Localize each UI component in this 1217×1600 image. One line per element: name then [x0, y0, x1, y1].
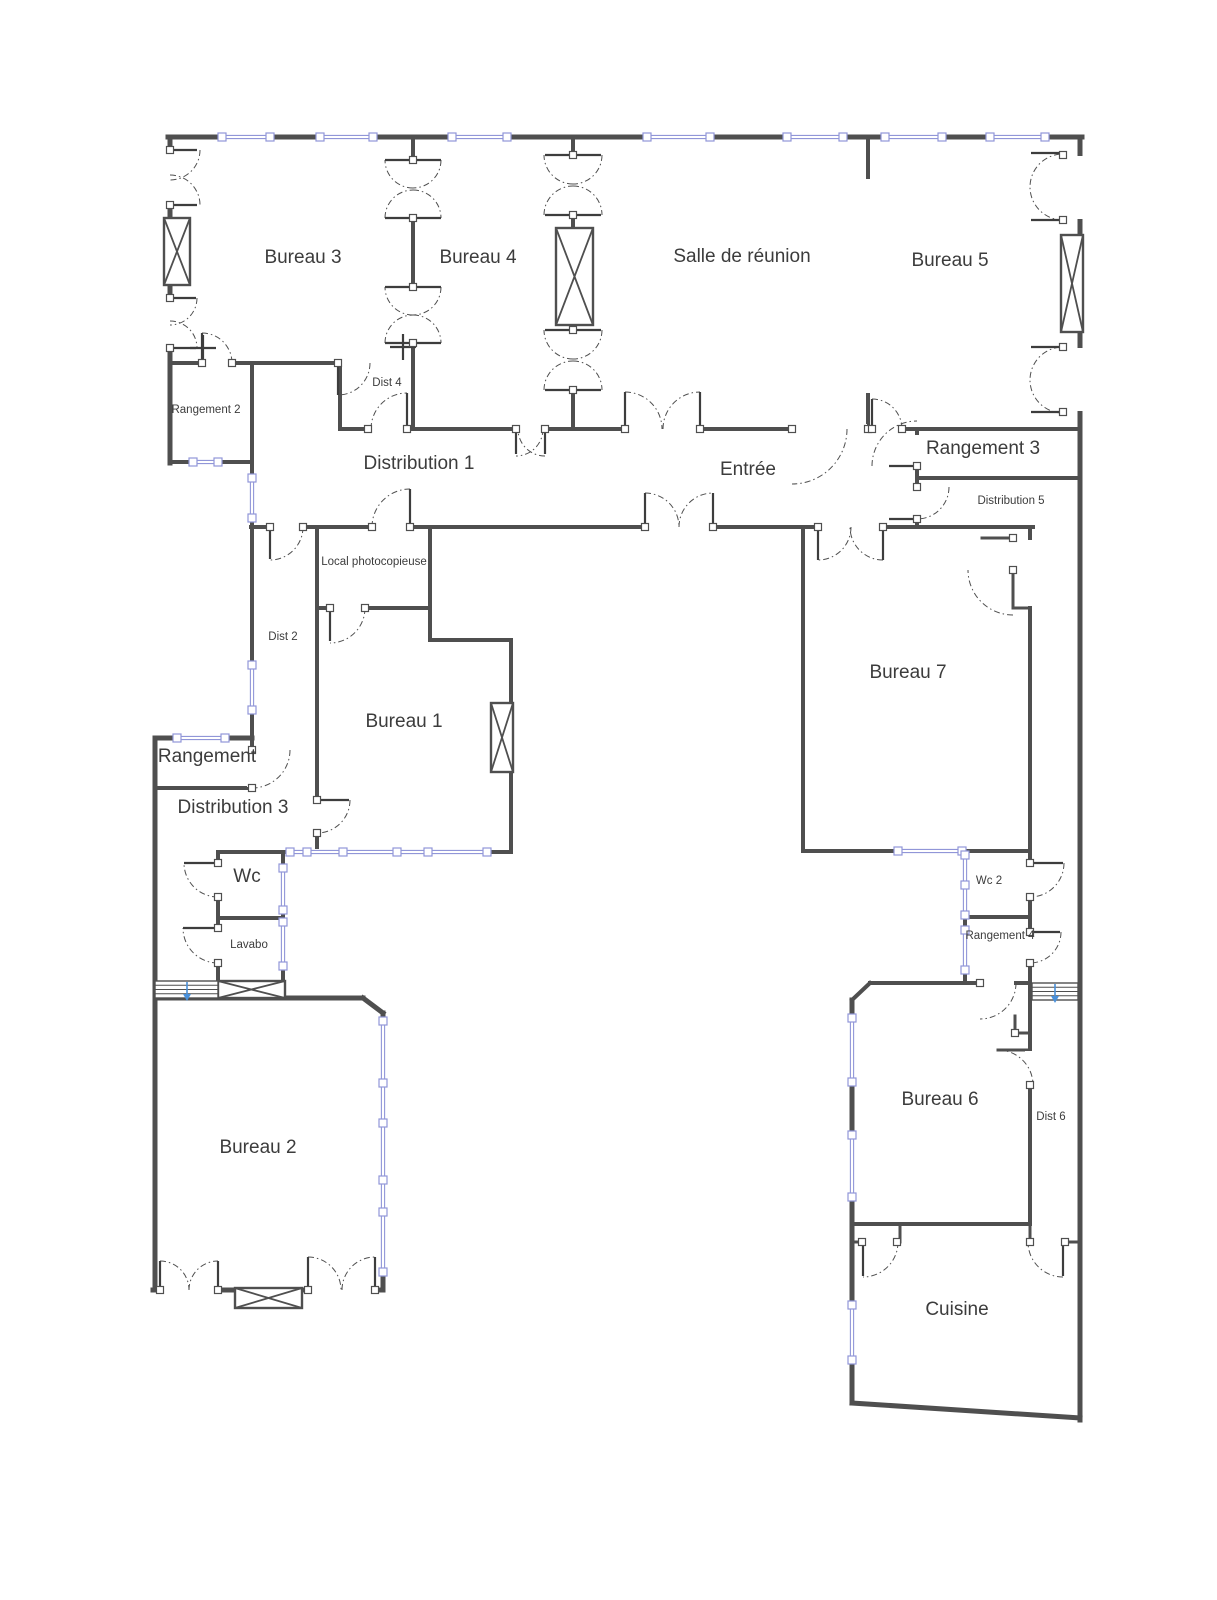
room-label-rangement-2: Rangement 2 — [171, 404, 240, 416]
window-mullion — [961, 966, 969, 974]
door-jamb — [167, 345, 174, 352]
door-jamb — [697, 426, 704, 433]
room-label-salle-de-reunion: Salle de réunion — [673, 246, 810, 267]
door-jamb — [710, 524, 717, 531]
door-jamb — [267, 524, 274, 531]
door-jamb — [815, 524, 822, 531]
window-mullion — [248, 706, 256, 714]
window-mullion — [783, 133, 791, 141]
door-jamb — [314, 797, 321, 804]
door-jamb — [215, 925, 222, 932]
window-mullion — [286, 848, 294, 856]
window-mullion — [316, 133, 324, 141]
window-mullion — [839, 133, 847, 141]
door-jamb — [407, 524, 414, 531]
door-jamb — [215, 894, 222, 901]
door-jamb — [1027, 860, 1034, 867]
door-jamb — [622, 426, 629, 433]
door-jamb — [570, 327, 577, 334]
door-jamb — [513, 426, 520, 433]
room-label-wc-2: Wc 2 — [976, 875, 1002, 887]
door-jamb — [914, 516, 921, 523]
door-jamb — [869, 426, 876, 433]
door-jamb — [215, 1287, 222, 1294]
window-mullion — [1041, 133, 1049, 141]
door-jamb — [1027, 1082, 1034, 1089]
room-label-bureau-5: Bureau 5 — [911, 250, 988, 271]
window-mullion — [483, 848, 491, 856]
wall-opening — [271, 522, 302, 532]
door-jamb — [914, 463, 921, 470]
room-label-rangement-4: Rangement 4 — [965, 930, 1035, 942]
window-mullion — [706, 133, 714, 141]
window-mullion — [848, 1356, 856, 1364]
door-jamb — [229, 360, 236, 367]
window-mullion — [369, 133, 377, 141]
door-jamb — [199, 360, 206, 367]
wall-opening — [373, 522, 409, 532]
door-jamb — [314, 830, 321, 837]
door-jamb — [570, 152, 577, 159]
window-mullion — [173, 734, 181, 742]
window-mullion — [848, 1301, 856, 1309]
wall-opening — [912, 488, 922, 518]
door-jamb — [859, 1239, 866, 1246]
window-mullion — [986, 133, 994, 141]
window-mullion — [938, 133, 946, 141]
door-jamb — [1060, 152, 1067, 159]
door-jamb — [977, 980, 984, 987]
door-jamb — [404, 426, 411, 433]
room-label-local-photocopieuse: Local photocopieuse — [321, 556, 427, 568]
wall-opening — [912, 435, 922, 465]
door-jamb — [1027, 894, 1034, 901]
window-mullion — [379, 1176, 387, 1184]
door-jamb — [1010, 567, 1017, 574]
door-jamb — [300, 524, 307, 531]
door-jamb — [1062, 1239, 1069, 1246]
door-jamb — [167, 147, 174, 154]
window-mullion — [379, 1079, 387, 1087]
window-mullion — [379, 1208, 387, 1216]
wall-opening — [407, 161, 418, 217]
window-mullion — [961, 911, 969, 919]
window-mullion — [379, 1119, 387, 1127]
window-mullion — [279, 864, 287, 872]
door-jamb — [167, 202, 174, 209]
door-jamb — [369, 524, 376, 531]
window-mullion — [379, 1017, 387, 1025]
wall-opening — [1025, 864, 1035, 896]
window-mullion — [189, 458, 197, 466]
door-jamb — [880, 524, 887, 531]
window-mullion — [961, 881, 969, 889]
window-mullion — [848, 1131, 856, 1139]
window-mullion — [424, 848, 432, 856]
window-mullion — [379, 1268, 387, 1276]
wall-opening — [312, 801, 322, 832]
wall-opening — [213, 929, 223, 962]
door-jamb — [570, 212, 577, 219]
room-label-dist-6: Dist 6 — [1036, 1111, 1065, 1123]
room-label-distribution-5: Distribution 5 — [977, 495, 1044, 507]
room-label-dist-2: Dist 2 — [268, 631, 297, 643]
door-jamb — [542, 426, 549, 433]
wall-opening — [164, 150, 175, 205]
room-label-distribution-3: Distribution 3 — [178, 797, 289, 818]
door-jamb — [1027, 960, 1034, 967]
wall-opening — [567, 331, 578, 389]
window-mullion — [248, 514, 256, 522]
door-jamb — [365, 426, 372, 433]
door-jamb — [249, 785, 256, 792]
door-jamb — [1027, 1239, 1034, 1246]
window-mullion — [303, 848, 311, 856]
window-mullion — [266, 133, 274, 141]
floorplan: Bureau 3Bureau 4Salle de réunionBureau 5… — [0, 0, 1217, 1600]
room-label-dist-4: Dist 4 — [372, 377, 402, 389]
door-jamb — [215, 860, 222, 867]
door-jamb — [305, 1287, 312, 1294]
door-jamb — [215, 960, 222, 967]
window-mullion — [339, 848, 347, 856]
room-label-rangement-3: Rangement 3 — [926, 438, 1040, 459]
room-label-bureau-6: Bureau 6 — [901, 1089, 978, 1110]
room-label-bureau-3: Bureau 3 — [264, 247, 341, 268]
window-mullion — [503, 133, 511, 141]
wall-opening — [1074, 156, 1085, 219]
door-jamb — [410, 284, 417, 291]
room-label-bureau-1: Bureau 1 — [365, 711, 442, 732]
door-jamb — [899, 426, 906, 433]
door-jamb — [642, 524, 649, 531]
window-mullion — [881, 133, 889, 141]
wall-opening — [793, 424, 867, 434]
window-mullion — [848, 1078, 856, 1086]
wall-opening — [981, 978, 1014, 988]
wall-opening — [567, 156, 578, 214]
door-jamb — [1012, 1030, 1019, 1037]
door-jamb — [410, 157, 417, 164]
window-mullion — [221, 734, 229, 742]
door-jamb — [157, 1287, 164, 1294]
wall-opening — [1074, 348, 1085, 411]
door-jamb — [1060, 217, 1067, 224]
window-mullion — [214, 458, 222, 466]
room-label-lavabo: Lavabo — [230, 939, 268, 951]
wall-opening — [202, 357, 232, 368]
door-jamb — [1010, 535, 1017, 542]
window-mullion — [448, 133, 456, 141]
window-mullion — [393, 848, 401, 856]
room-label-entree: Entrée — [720, 459, 776, 480]
door-jamb — [167, 295, 174, 302]
wall-opening — [331, 603, 364, 613]
room-label-rangement: Rangement — [158, 746, 257, 767]
door-jamb — [410, 340, 417, 347]
door-jamb — [789, 426, 796, 433]
window-mullion — [643, 133, 651, 141]
floorplan-svg: Bureau 3Bureau 4Salle de réunionBureau 5… — [0, 0, 1217, 1600]
wall-opening — [309, 1284, 374, 1295]
door-jamb — [410, 215, 417, 222]
window-mullion — [279, 962, 287, 970]
room-label-cuisine: Cuisine — [925, 1299, 988, 1320]
window-mullion — [848, 1193, 856, 1201]
room-label-bureau-2: Bureau 2 — [219, 1137, 296, 1158]
window-mullion — [961, 851, 969, 859]
wall-opening — [1025, 1051, 1035, 1084]
door-jamb — [894, 1239, 901, 1246]
door-jamb — [914, 484, 921, 491]
door-jamb — [570, 387, 577, 394]
window-mullion — [848, 1014, 856, 1022]
door-jamb — [327, 605, 334, 612]
window-mullion — [279, 906, 287, 914]
door-jamb — [1060, 344, 1067, 351]
room-label-bureau-7: Bureau 7 — [869, 662, 946, 683]
window-mullion — [248, 474, 256, 482]
door-jamb — [1060, 409, 1067, 416]
window-mullion — [248, 661, 256, 669]
room-label-distribution-1: Distribution 1 — [364, 453, 475, 474]
room-label-wc: Wc — [233, 866, 260, 887]
door-jamb — [335, 360, 342, 367]
window-mullion — [894, 847, 902, 855]
room-label-bureau-4: Bureau 4 — [439, 247, 517, 268]
window-mullion — [279, 918, 287, 926]
wall-opening — [517, 424, 544, 434]
wall-opening — [213, 864, 223, 896]
door-jamb — [362, 605, 369, 612]
door-jamb — [372, 1287, 379, 1294]
wall-opening — [369, 424, 406, 434]
wall-opening — [164, 298, 175, 348]
window-mullion — [218, 133, 226, 141]
